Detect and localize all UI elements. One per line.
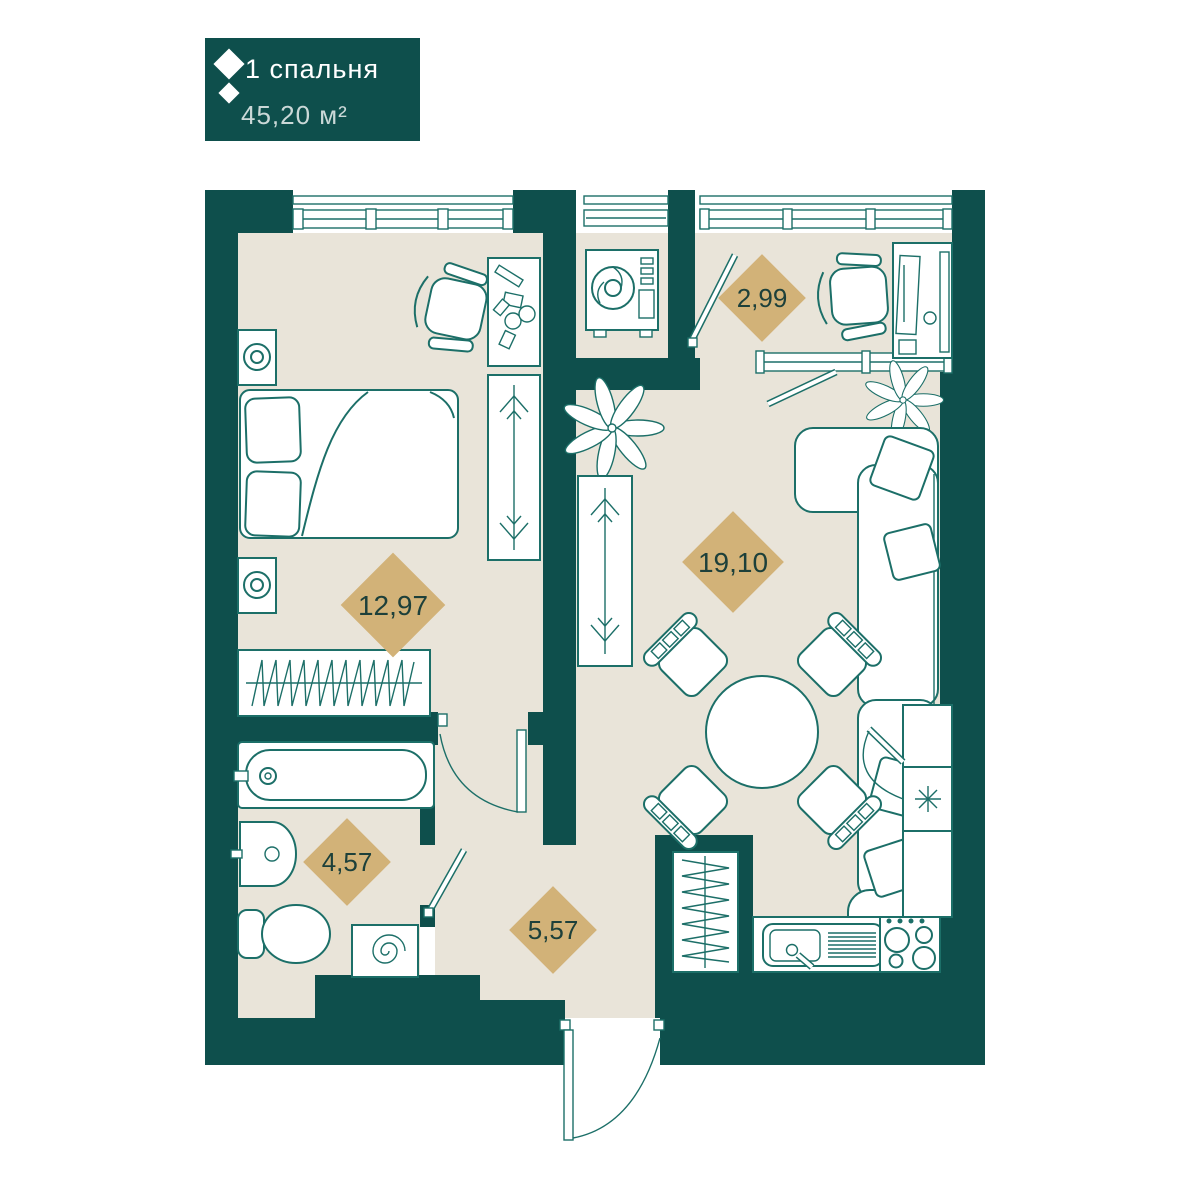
svg-text:2,99: 2,99 — [737, 283, 788, 313]
radiator-vertical — [673, 852, 738, 972]
double-bed — [240, 390, 458, 538]
bedroom-window — [293, 196, 513, 229]
dressing-table — [488, 258, 540, 366]
floor-plan: 12,97 19,10 2,99 4,57 5,57 — [0, 0, 1200, 1200]
entrance-door — [560, 1020, 664, 1140]
bathtub — [234, 742, 434, 808]
alcove-window — [584, 196, 668, 226]
bedroom-door-gap — [438, 712, 528, 745]
svg-text:5,57: 5,57 — [528, 915, 579, 945]
nightstand-lamp — [238, 558, 276, 613]
radiator — [238, 650, 430, 716]
svg-text:12,97: 12,97 — [358, 590, 428, 621]
throw-pillow — [883, 523, 941, 581]
wardrobe-hangers — [578, 476, 632, 666]
svg-text:19,10: 19,10 — [698, 547, 768, 578]
toilet — [238, 905, 330, 963]
svg-text:4,57: 4,57 — [322, 847, 373, 877]
stove — [880, 917, 940, 972]
washing-machine — [352, 925, 418, 977]
table-top — [706, 676, 818, 788]
balcony-glazing-top — [700, 196, 952, 229]
desk-monitor — [893, 243, 952, 358]
wardrobe-hangers — [488, 375, 540, 560]
nightstand-lamp — [238, 330, 276, 385]
floorplan-page: 1 спальня 45,20 м² — [0, 0, 1200, 1200]
wash-basin — [231, 822, 296, 886]
air-conditioner-unit — [586, 250, 658, 337]
bathroom-floor-ext — [238, 975, 315, 1018]
kitchen-sink — [763, 924, 883, 967]
